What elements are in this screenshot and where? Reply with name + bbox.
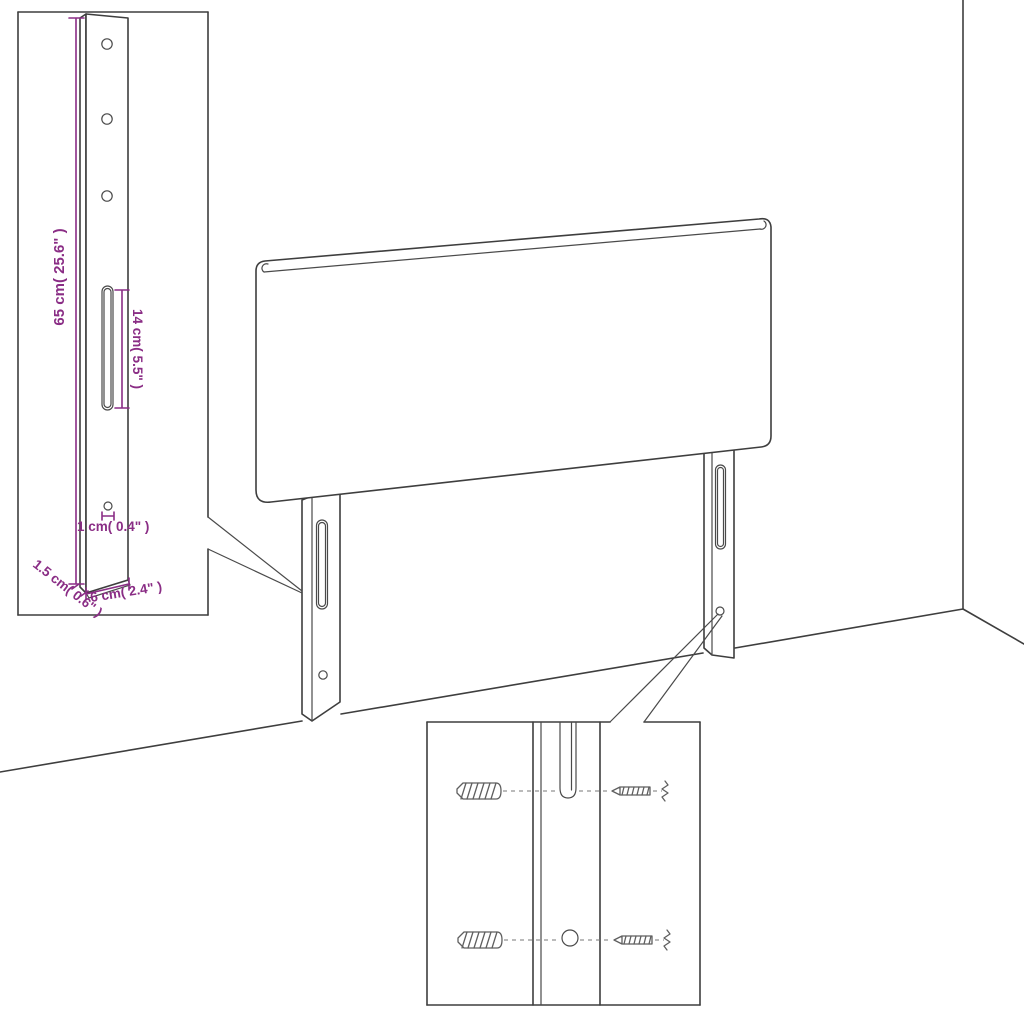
- left-leg: [302, 492, 340, 721]
- screw-bottom-right: [614, 930, 670, 950]
- screw-top-right: [612, 781, 668, 801]
- dim-hole-label: 1 cm( 0.4" ): [77, 519, 149, 534]
- callout-bottom-line-1: [610, 614, 718, 722]
- mounting-border: [427, 722, 700, 1005]
- screw-plug-top-left: [457, 783, 501, 799]
- headboard-diagram: 65 cm( 25.6" ) 14 cm( 5.5" ) 1 cm( 0.4" …: [0, 0, 1024, 1024]
- insertion-leaders: [503, 791, 612, 940]
- mounting-leg-strip: [533, 722, 600, 1005]
- right-leg: [704, 444, 734, 658]
- callout-left: [208, 517, 302, 593]
- strip-slot: [560, 722, 576, 798]
- headboard-panel: [256, 219, 771, 503]
- right-leg-body: [704, 444, 734, 658]
- mounting-inset: [427, 722, 700, 1005]
- floor-line-corner-right: [963, 609, 1024, 644]
- strip-hole: [562, 930, 578, 946]
- callout-left-line-1: [208, 517, 302, 591]
- floor-line-left: [0, 721, 302, 772]
- dim-slot-label: 14 cm( 5.5" ): [130, 309, 145, 389]
- floor-line-right: [735, 609, 963, 648]
- diagram-canvas: 65 cm( 25.6" ) 14 cm( 5.5" ) 1 cm( 0.4" …: [0, 0, 1024, 1024]
- callout-left-line-2: [208, 549, 302, 593]
- bracket-side-face: [80, 14, 86, 593]
- panel-outline: [256, 219, 771, 503]
- dim-height-label: 65 cm( 25.6" ): [51, 228, 68, 325]
- leg-detail-inset: 65 cm( 25.6" ) 14 cm( 5.5" ) 1 cm( 0.4" …: [18, 12, 208, 620]
- screw-plug-bottom-left: [458, 932, 502, 948]
- callout-bottom-line-2: [644, 616, 722, 722]
